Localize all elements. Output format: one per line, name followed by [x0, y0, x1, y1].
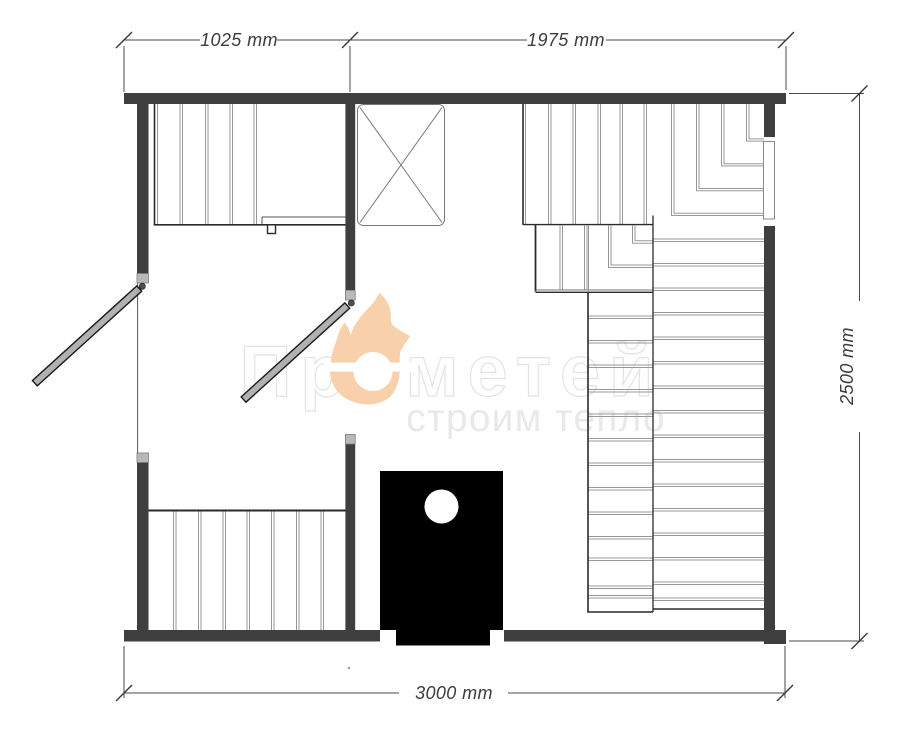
svg-text:2500 mm: 2500 mm [837, 327, 857, 406]
svg-text:1025 mm: 1025 mm [200, 30, 278, 50]
svg-text:1975 mm: 1975 mm [527, 30, 605, 50]
svg-text:3000 mm: 3000 mm [415, 683, 493, 703]
svg-text:строим тепло: строим тепло [406, 397, 666, 440]
